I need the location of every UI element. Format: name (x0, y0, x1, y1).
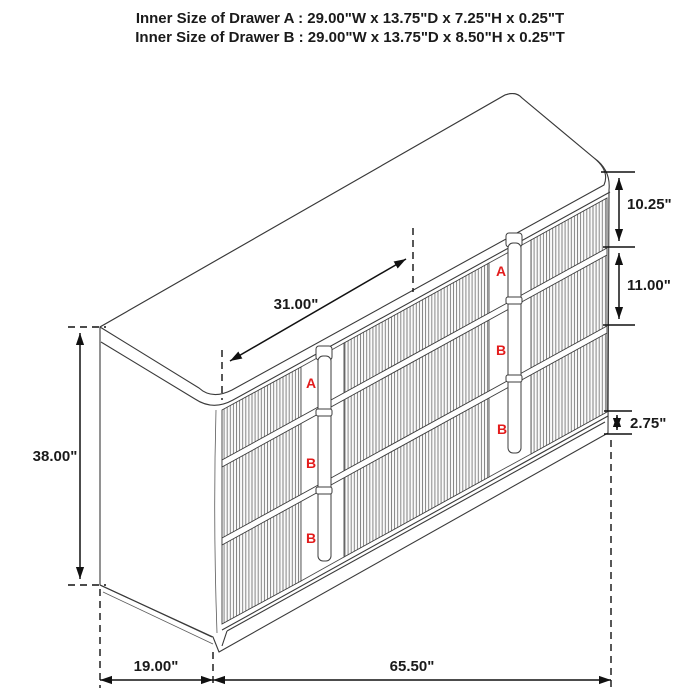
dim-1100-label: 11.00" (627, 277, 671, 294)
dim-1025-label: 10.25" (627, 196, 672, 213)
sideboard-dimension-diagram: A B B A B B Inner Size of Drawer A : 29.… (0, 0, 700, 700)
title-line-1: Inner Size of Drawer A : 29.00"W x 13.75… (136, 10, 564, 27)
handle-center (316, 346, 332, 561)
handle-center-collar-1 (316, 409, 332, 416)
handle-right-bar (508, 243, 521, 453)
fluted-door-right (531, 198, 607, 454)
drawer-b1-label-center: B (306, 455, 316, 471)
handle-right-collar-1 (506, 297, 522, 304)
drawer-b2-label-center: B (306, 530, 316, 546)
dim-31-label: 31.00" (274, 296, 319, 313)
handle-right (506, 233, 522, 453)
fluted-door-left (222, 367, 301, 624)
dim-6550-label: 65.50" (390, 658, 435, 675)
dim-19-label: 19.00" (134, 658, 179, 675)
drawer-a-label-center: A (306, 375, 316, 391)
dim-275-label: 2.75" (630, 415, 666, 432)
drawer-b2-label-right: B (497, 421, 507, 437)
dimension-diagram-page: A B B A B B Inner Size of Drawer A : 29.… (0, 0, 700, 700)
drawer-b1-label-right: B (496, 342, 506, 358)
dim-38-label: 38.00" (33, 448, 78, 465)
handle-center-collar-2 (316, 487, 332, 494)
sideboard-drawing: A B B A B B (100, 94, 610, 652)
handle-center-bar (318, 356, 331, 561)
drawer-a-label-right: A (496, 263, 506, 279)
title-line-2: Inner Size of Drawer B : 29.00"W x 13.75… (135, 29, 564, 46)
handle-right-collar-2 (506, 375, 522, 382)
